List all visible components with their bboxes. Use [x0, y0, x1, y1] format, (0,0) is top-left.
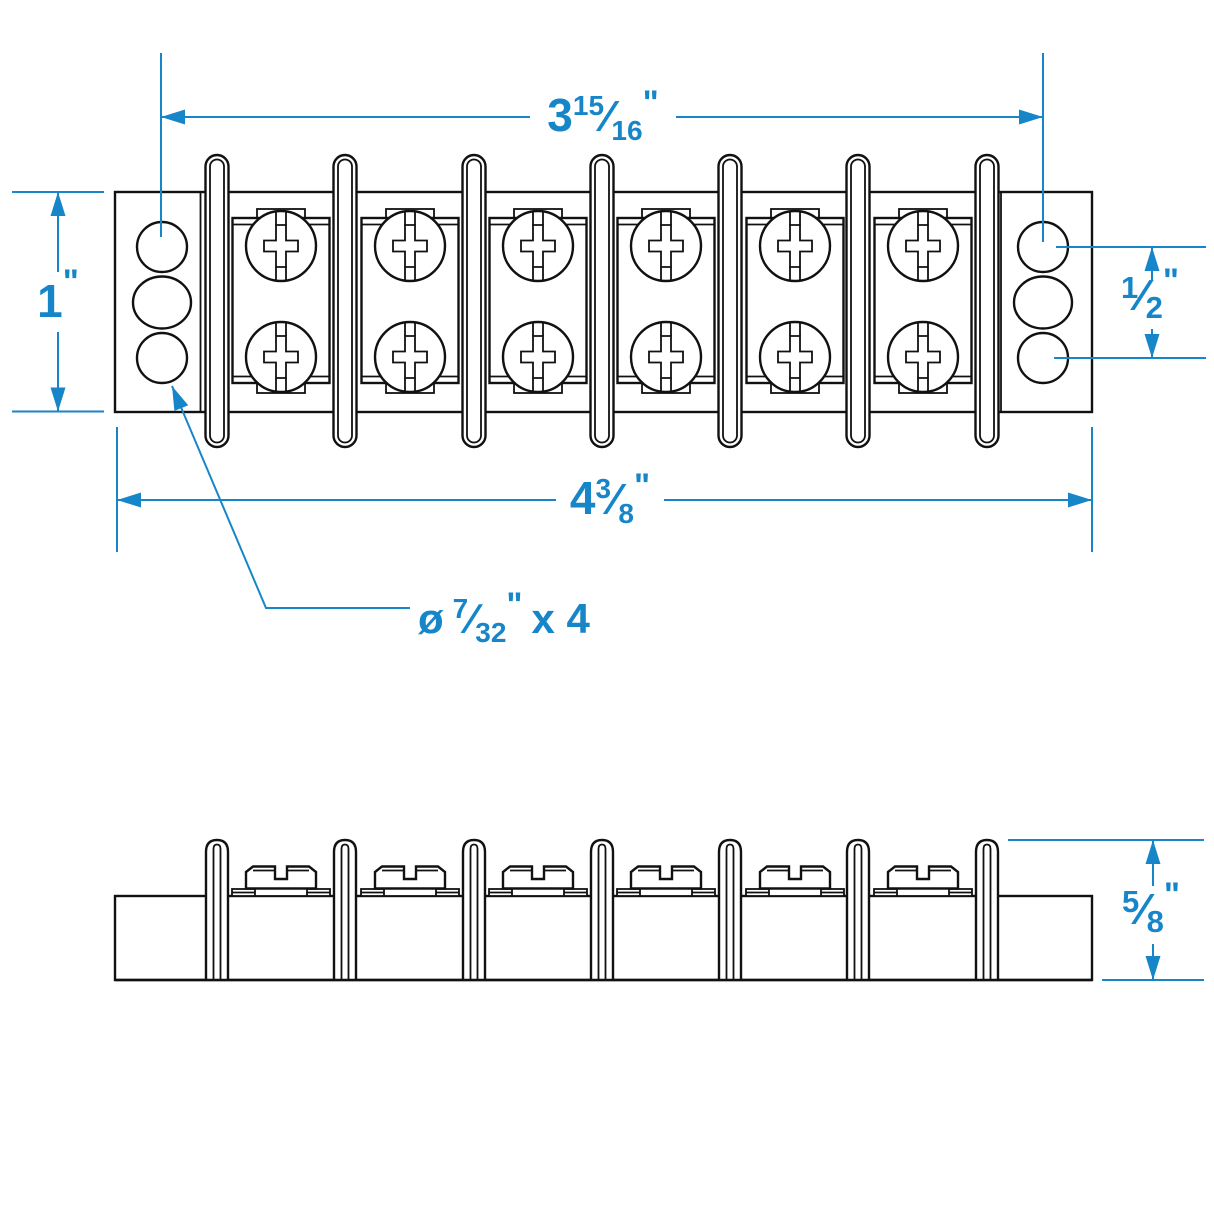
arrowhead-up-icon: [51, 192, 66, 216]
top-view: [115, 155, 1092, 447]
dim-hole-spacing-label: 1⁄2": [1121, 262, 1179, 325]
arrowhead-right-icon: [1019, 110, 1043, 125]
screw-side-4: [617, 867, 715, 897]
screw-side-3: [489, 867, 587, 897]
arrowhead-up-icon: [1146, 840, 1161, 864]
dim-body-height-label: 1": [37, 263, 79, 327]
arrowhead-left-icon: [117, 493, 141, 508]
barrier-5: [719, 155, 742, 447]
arrowhead-down-icon: [1146, 956, 1161, 980]
terminal-section-2: [362, 209, 459, 393]
terminal-section-1: [233, 209, 330, 393]
barrier-side-2: [334, 840, 356, 980]
barrier-4: [591, 155, 614, 447]
barrier-2: [334, 155, 357, 447]
screw-side-1: [232, 867, 330, 897]
dim-side-height-label: 5⁄8": [1122, 876, 1180, 939]
screw-side-6: [874, 867, 972, 897]
dim-top-width-label: 315⁄16": [547, 84, 658, 146]
arrowhead-right-icon: [1068, 493, 1092, 508]
terminal-section-3: [490, 209, 587, 393]
side-view: [115, 840, 1092, 980]
terminal-section-5: [747, 209, 844, 393]
hole-callout-label: ø7⁄32"x 4: [418, 586, 591, 648]
screw-side-2: [361, 867, 459, 897]
arrowhead-up-icon: [1145, 247, 1160, 271]
barrier-side-7: [976, 840, 998, 980]
arrowhead-left-icon: [161, 110, 185, 125]
arrowhead-down-icon: [1145, 334, 1160, 358]
barrier-3: [463, 155, 486, 447]
barrier-side-1: [206, 840, 228, 980]
screw-side-5: [746, 867, 844, 897]
hole-diameter-callout: ø7⁄32"x 4: [172, 386, 591, 648]
barrier-side-4: [591, 840, 613, 980]
barrier-side-6: [847, 840, 869, 980]
barrier-6: [847, 155, 870, 447]
terminal-section-4: [618, 209, 715, 393]
barrier-7: [976, 155, 999, 447]
barrier-1: [206, 155, 229, 447]
arrowhead-down-icon: [51, 388, 66, 412]
dim-body-height: 1": [12, 192, 104, 412]
barrier-side-3: [463, 840, 485, 980]
terminal-block-drawing: 315⁄16" 1" 1⁄2" 43⁄8" ø7⁄32"x 4: [0, 0, 1214, 1214]
dim-overall-width-label: 43⁄8": [570, 467, 650, 529]
terminal-section-6: [875, 209, 972, 393]
barrier-side-5: [719, 840, 741, 980]
technical-drawing-page: 315⁄16" 1" 1⁄2" 43⁄8" ø7⁄32"x 4: [0, 0, 1214, 1214]
